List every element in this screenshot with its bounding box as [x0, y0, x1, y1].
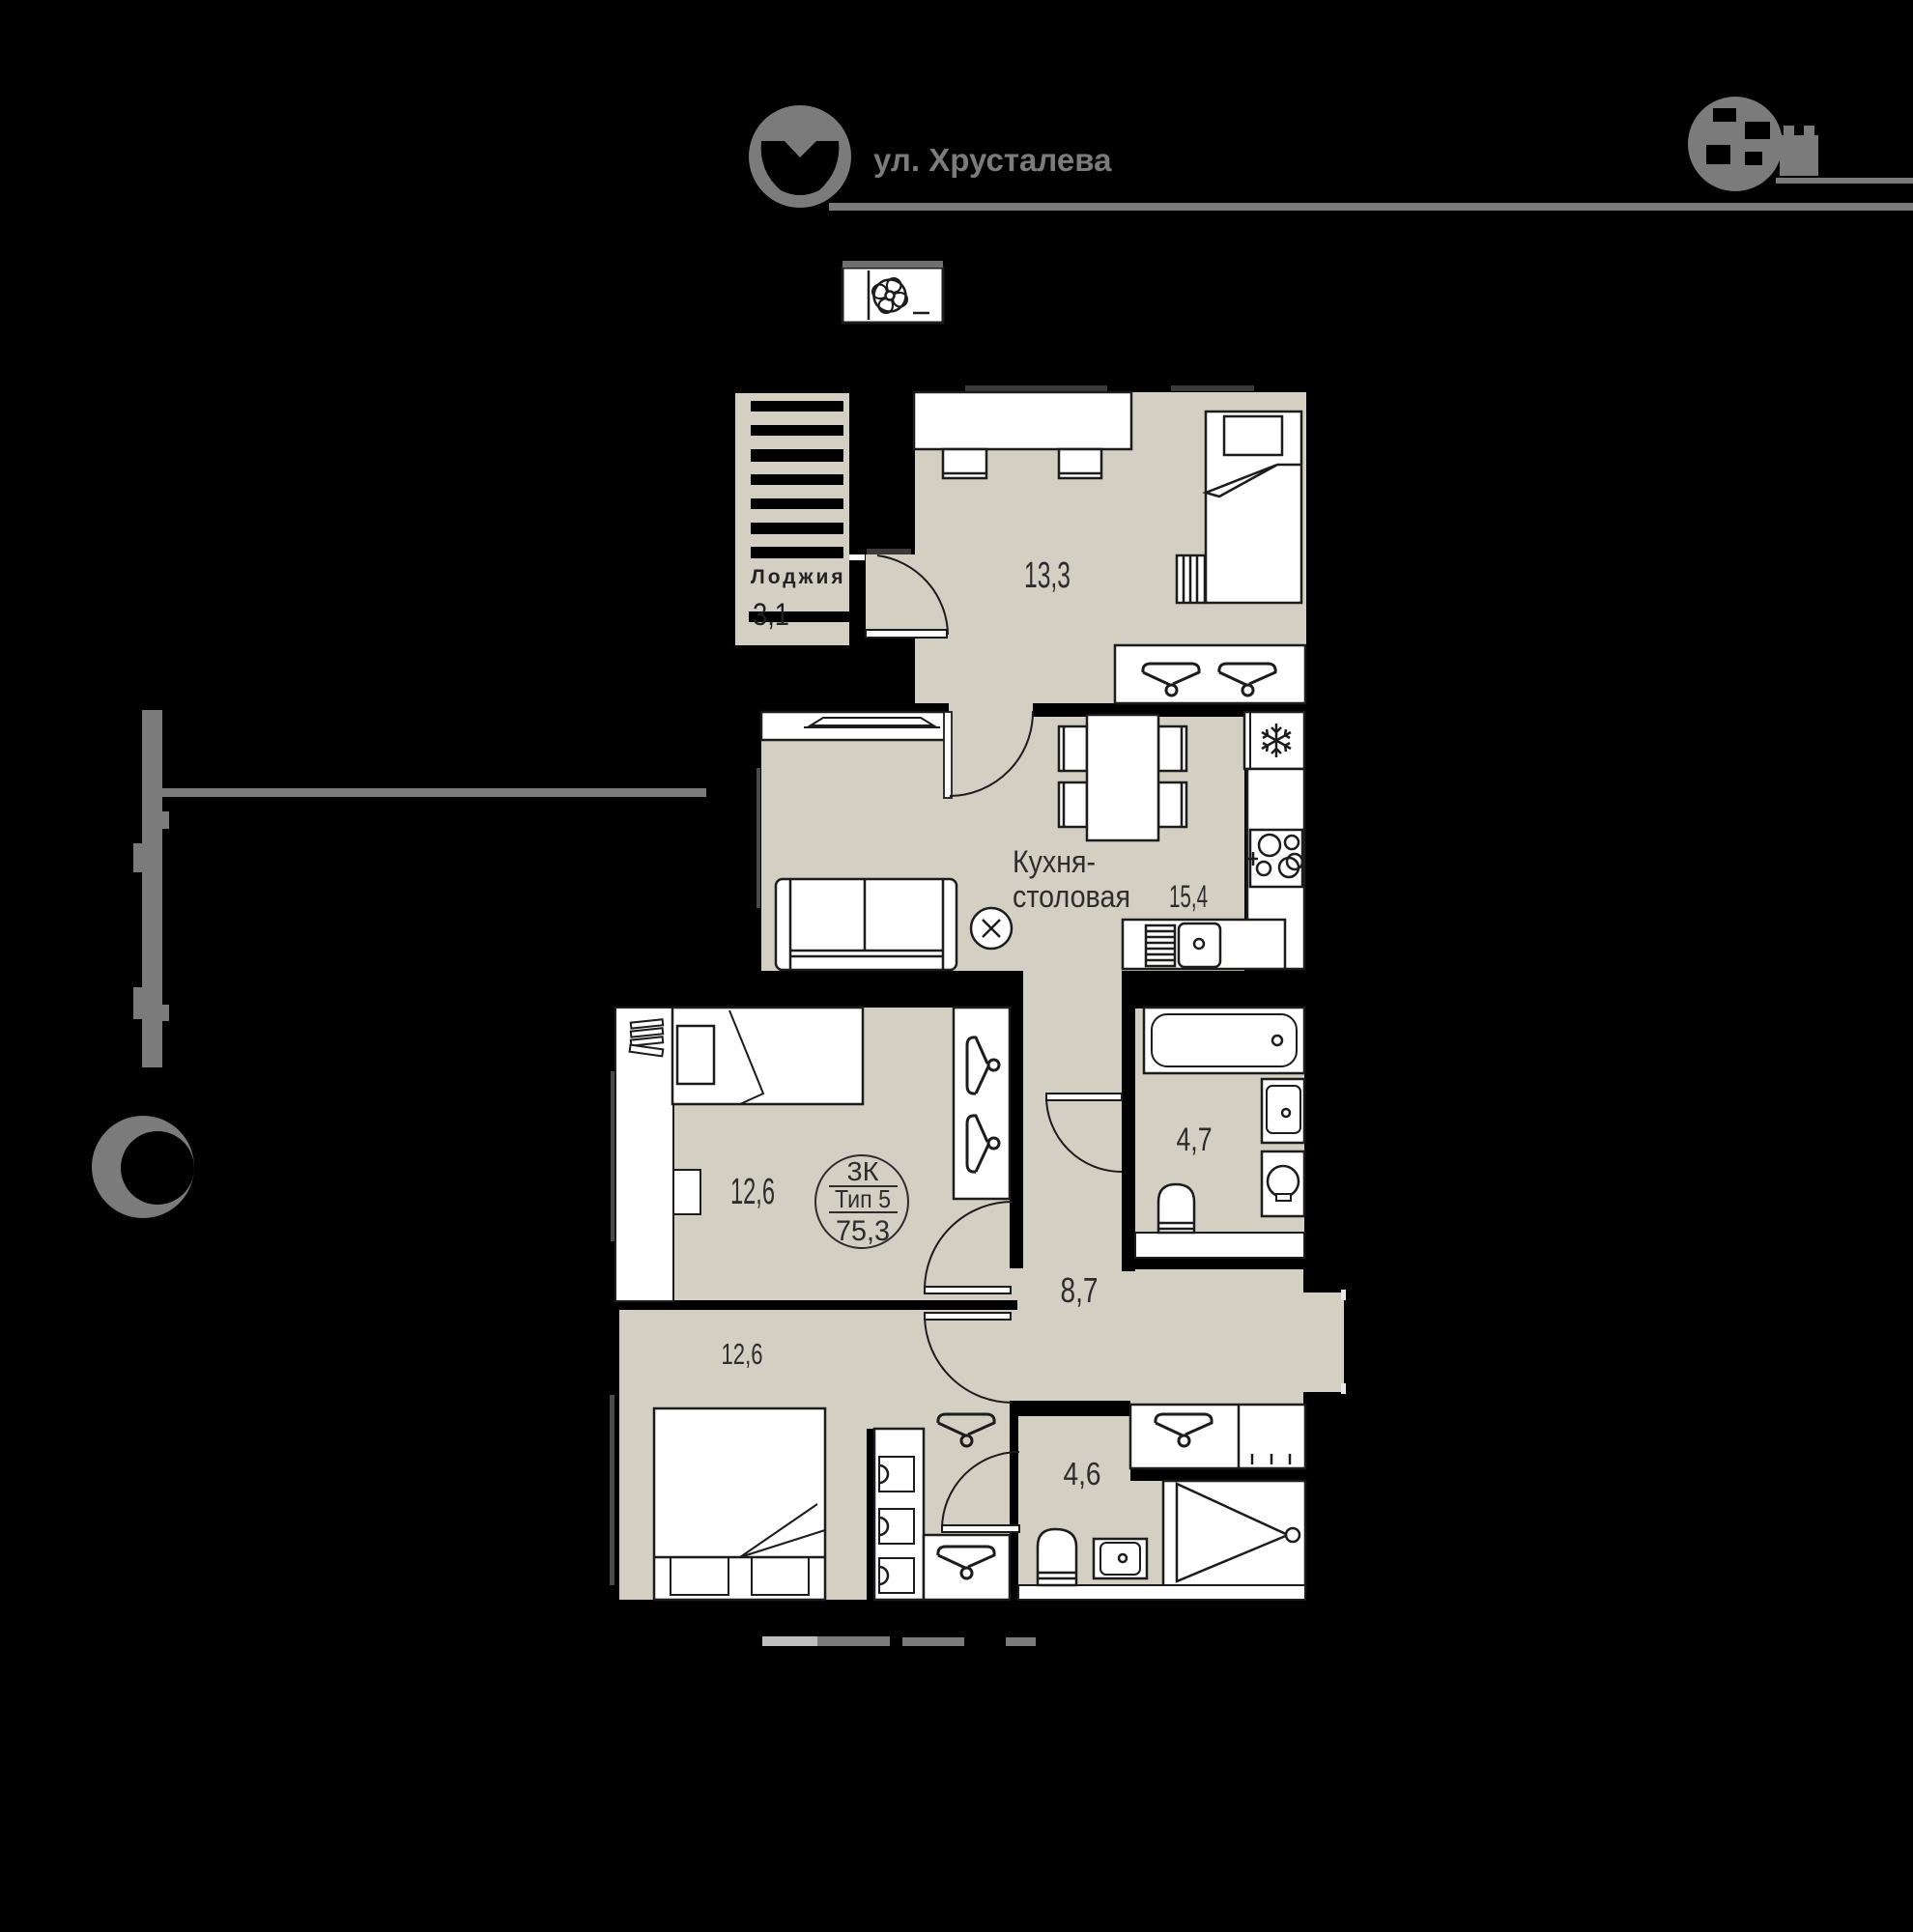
svg-text:15,4: 15,4	[1169, 879, 1208, 914]
svg-text:4,7: 4,7	[1177, 1122, 1213, 1158]
svg-text:12,6: 12,6	[722, 1337, 763, 1371]
svg-text:8,7: 8,7	[1061, 1270, 1099, 1310]
svg-text:13,3: 13,3	[1024, 555, 1071, 596]
svg-text:3,1: 3,1	[753, 597, 789, 632]
svg-text:ул. Хрусталева: ул. Хрусталева	[873, 142, 1112, 178]
svg-text:Тип 5: Тип 5	[835, 1184, 891, 1213]
svg-text:Лоджия: Лоджия	[751, 566, 846, 588]
svg-text:75,3: 75,3	[836, 1215, 890, 1247]
svg-text:Кухня-: Кухня-	[1013, 844, 1096, 879]
svg-text:3К: 3К	[847, 1156, 880, 1186]
svg-text:4,6: 4,6	[1064, 1456, 1101, 1492]
svg-text:12,6: 12,6	[730, 1172, 775, 1212]
svg-text:столовая: столовая	[1013, 879, 1130, 914]
